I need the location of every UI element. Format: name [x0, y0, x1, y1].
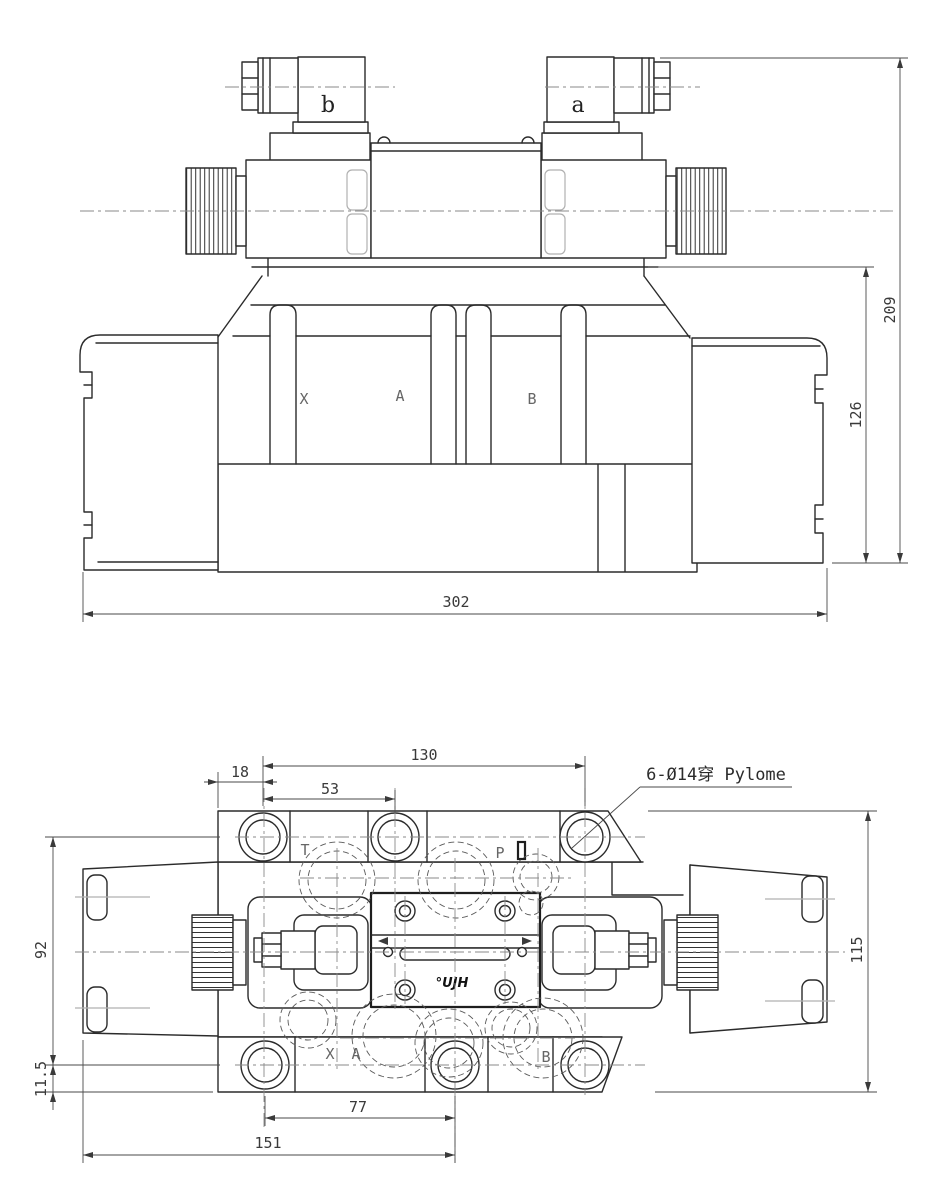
pilot-center-body	[371, 143, 541, 258]
valve-dimension-drawing: X A B	[0, 0, 940, 1180]
dim-lower-span: 151	[254, 1134, 281, 1152]
dim-total-width: 302	[442, 593, 469, 611]
front-port-a-label: A	[395, 387, 404, 405]
plan-left-solenoid	[192, 897, 372, 1008]
plan-port-t-label: T	[300, 841, 309, 859]
dim-total-height: 209	[881, 296, 899, 323]
connector-a-label: a	[571, 93, 584, 118]
plan-left-knob	[192, 915, 246, 990]
connector-b: b	[242, 57, 368, 133]
dim-overall-height: 115	[848, 936, 866, 963]
front-center-body	[218, 258, 690, 464]
dim-edge-offset: 18	[231, 763, 249, 781]
top-view: °UJH T P X A B	[32, 746, 877, 1163]
hole-callout-text: 6-Ø14穿 Pylome	[646, 765, 786, 785]
dim-bottom-offset: 11.5	[32, 1061, 50, 1097]
dim-hole-span-v: 92	[32, 941, 50, 959]
dim-hole-span-h: 130	[410, 746, 437, 764]
plan-port-a-label: A	[351, 1045, 360, 1063]
pilot-valve-assembly	[186, 133, 726, 258]
dim-body-height: 126	[847, 401, 865, 428]
front-port-x-label: X	[299, 390, 308, 408]
front-left-end-block	[80, 335, 218, 570]
plan-right-knob	[664, 915, 718, 990]
front-port-b-label: B	[527, 390, 536, 408]
connector-a: a	[544, 57, 670, 133]
plan-port-b-label: B	[541, 1048, 550, 1066]
front-view: X A B	[80, 57, 908, 622]
connector-b-label: b	[321, 93, 335, 118]
plan-port-x-label: X	[325, 1045, 334, 1063]
plan-pilot-plate: °UJH	[371, 893, 540, 1007]
front-right-end-block	[692, 338, 827, 563]
dim-lower-pitch: 77	[349, 1098, 367, 1116]
drawing-sheet: X A B	[0, 0, 940, 1180]
dim-hole-pitch: 53	[321, 780, 339, 798]
plan-port-p-label: P	[495, 844, 504, 862]
brand-logo: °UJH	[436, 976, 469, 991]
front-base-block	[218, 464, 697, 572]
